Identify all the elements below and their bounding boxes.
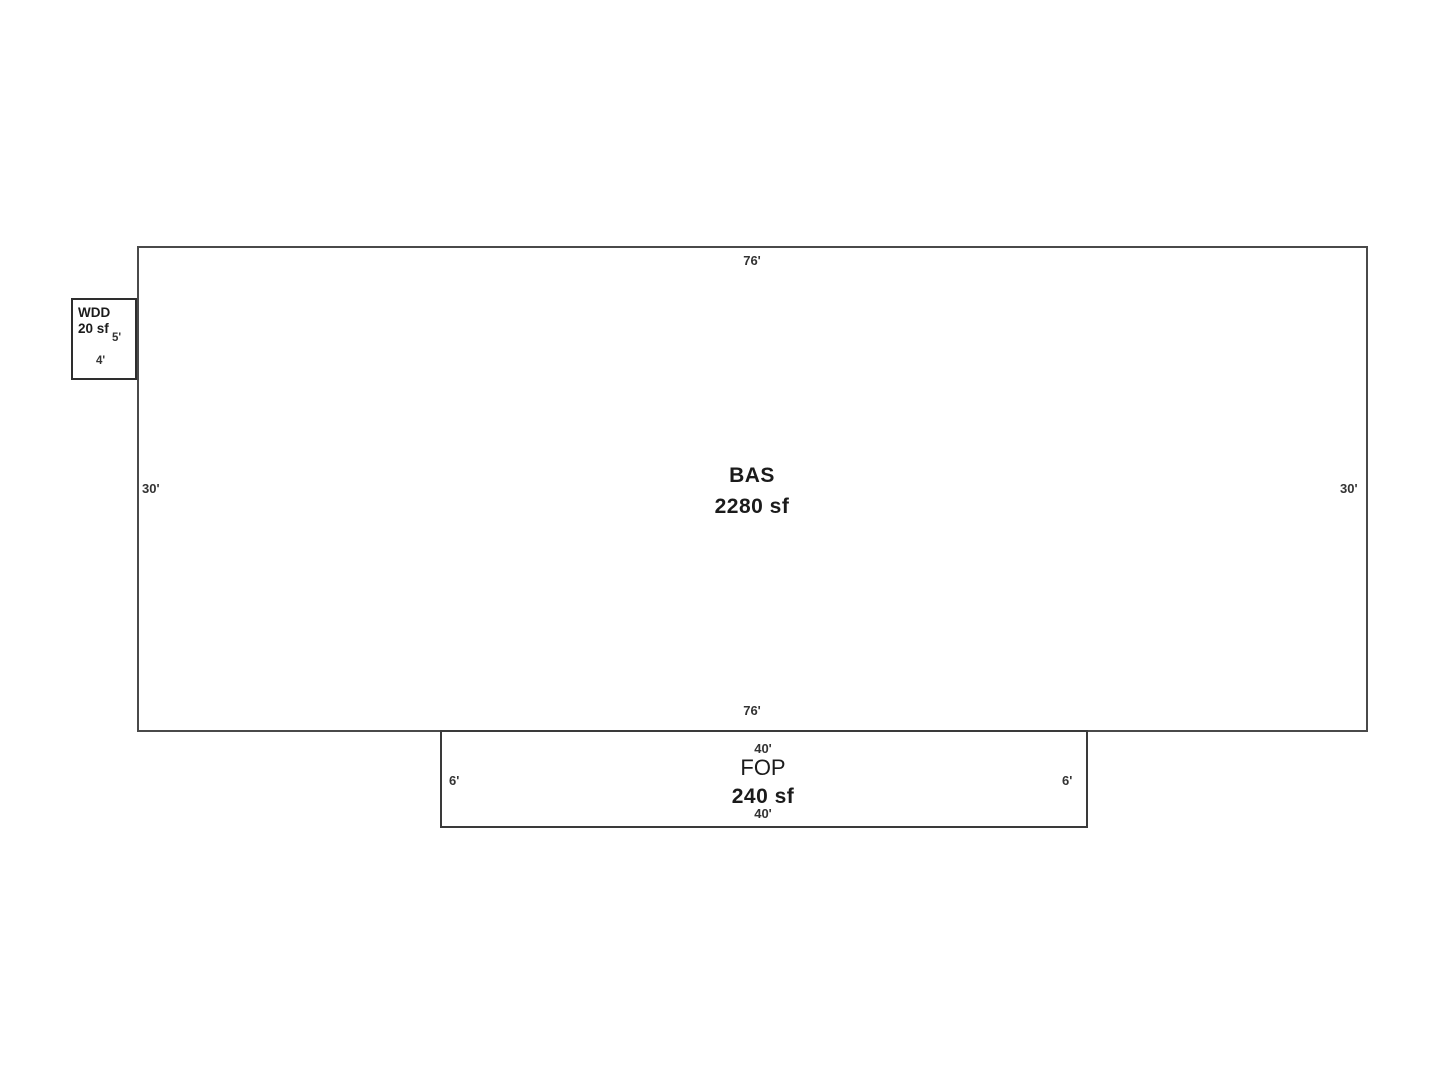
fop-dimension-bottom: 40' xyxy=(754,807,772,820)
fop-label: FOP xyxy=(740,757,785,779)
fop-area-label: 240 sf xyxy=(732,786,795,807)
bas-dimension-left: 30' xyxy=(142,482,160,495)
bas-dimension-bottom: 76' xyxy=(743,704,761,717)
bas-dimension-right: 30' xyxy=(1340,482,1358,495)
fop-dimension-left: 6' xyxy=(449,774,459,787)
wdd-dimension-bottom: 4' xyxy=(96,356,105,368)
floorplan-sketch: 76' 76' 30' 30' BAS 2280 sf WDD 20 sf 5'… xyxy=(0,0,1440,1080)
wdd-dimension-right: 5' xyxy=(112,333,121,345)
bas-dimension-top: 76' xyxy=(743,254,761,267)
bas-area-label: 2280 sf xyxy=(715,496,790,517)
fop-dimension-right: 6' xyxy=(1062,774,1072,787)
fop-dimension-top: 40' xyxy=(754,742,772,755)
bas-label: BAS xyxy=(729,465,775,486)
bas-area-outline xyxy=(137,246,1368,732)
wdd-label: WDD xyxy=(78,306,110,320)
wdd-area-label: 20 sf xyxy=(78,322,109,336)
